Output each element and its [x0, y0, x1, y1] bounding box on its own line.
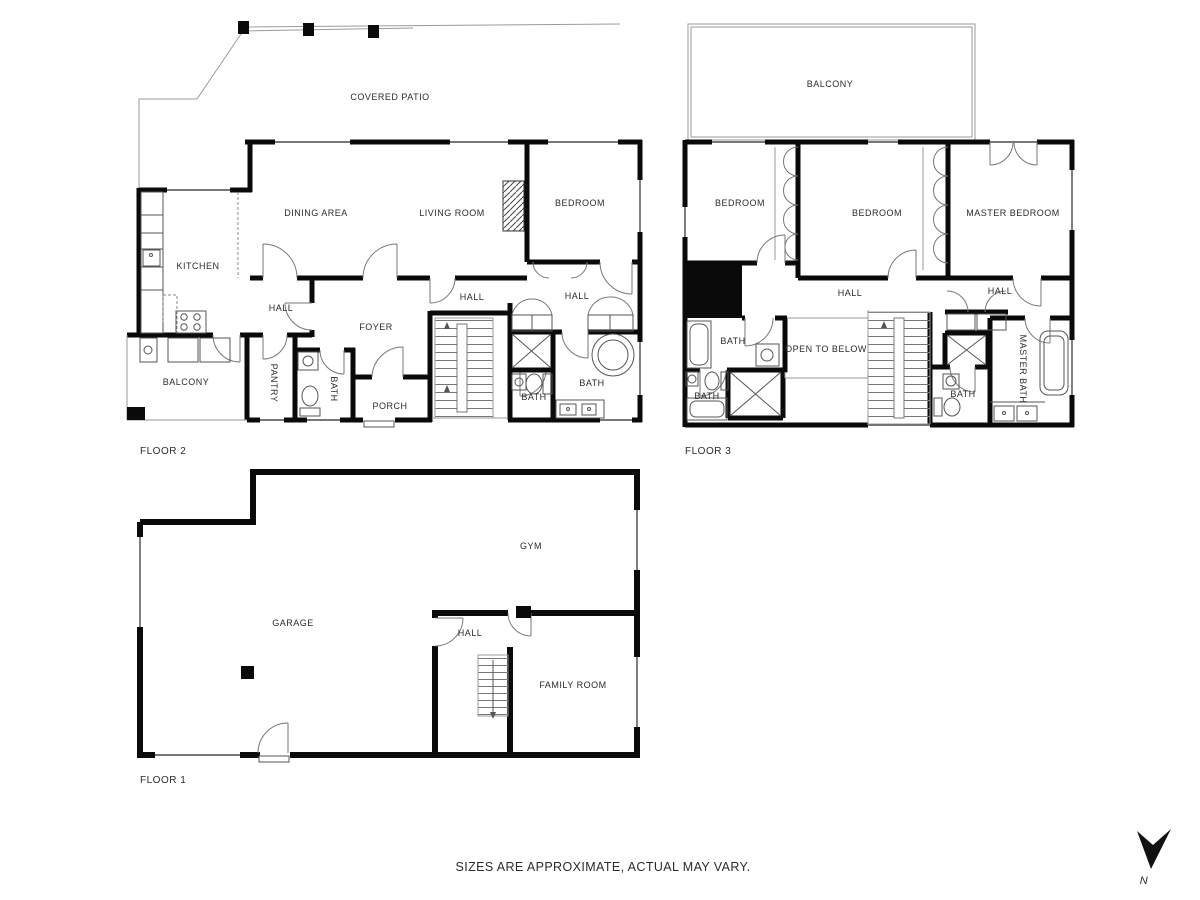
floor3-stairs: [868, 312, 930, 424]
chimney-mass: [685, 263, 742, 318]
floor1-plan: GYM GARAGE HALL FAMILY ROOM FLOOR 1: [140, 469, 637, 786]
room-label-bedroom-f2: BEDROOM: [555, 198, 605, 208]
room-label-balcony-f3: BALCONY: [807, 79, 854, 89]
room-label-hall-f1: HALL: [458, 628, 483, 638]
room-label-garage: GARAGE: [272, 618, 314, 628]
room-label-hall-center-f3: HALL: [838, 288, 863, 298]
room-label-master-bath: MASTER BATH: [1018, 335, 1028, 404]
room-label-hall-east-f2: HALL: [565, 291, 590, 301]
room-label-bath-small-f2: BATH: [521, 392, 546, 402]
floorplan-page: COVERED PATIO DINING AREA LIVING ROOM BE…: [0, 0, 1200, 900]
room-label-pantry: PANTRY: [269, 364, 279, 403]
room-label-gym: GYM: [520, 541, 542, 551]
room-label-bedroom-west-f3: BEDROOM: [715, 198, 765, 208]
room-label-living-room: LIVING ROOM: [419, 208, 485, 218]
floor1-stairs: [478, 655, 508, 719]
room-label-open-to-below: OPEN TO BELOW: [785, 344, 867, 354]
toilet: [526, 374, 542, 394]
room-label-kitchen: KITCHEN: [176, 261, 219, 271]
toilet: [944, 398, 960, 416]
floor2-bath-small-fixtures: [512, 374, 552, 394]
floor2-wardrobes: [512, 315, 633, 331]
floor1-windows: [140, 510, 637, 755]
floor2-plan: COVERED PATIO DINING AREA LIVING ROOM BE…: [127, 21, 642, 457]
toilet: [705, 372, 719, 390]
room-label-bath-center-f3: BATH: [950, 389, 975, 399]
patio-post: [303, 23, 314, 36]
floor2-bath-main-fixtures: [556, 334, 634, 418]
patio-post: [238, 21, 249, 34]
room-label-covered-patio: COVERED PATIO: [350, 92, 429, 102]
room-label-family-room: FAMILY ROOM: [539, 680, 606, 690]
floor2-label: FLOOR 2: [140, 446, 186, 457]
room-label-hall-east-f3: HALL: [988, 286, 1013, 296]
disclaimer-text: SIZES ARE APPROXIMATE, ACTUAL MAY VARY.: [455, 860, 750, 874]
room-label-bath-southwest-f3: BATH: [694, 391, 719, 401]
fireplace: [503, 181, 524, 231]
front-door-leaf: [364, 421, 394, 427]
room-label-balcony-f2: BALCONY: [163, 377, 210, 387]
room-label-dining-area: DINING AREA: [284, 208, 348, 218]
room-label-bedroom-center-f3: BEDROOM: [852, 208, 902, 218]
toilet: [302, 386, 318, 406]
room-label-bath-west-f2: BATH: [329, 376, 339, 401]
north-label: N: [1140, 875, 1148, 887]
room-label-bath-west-f3: BATH: [720, 336, 745, 346]
floorplan-canvas: COVERED PATIO DINING AREA LIVING ROOM BE…: [0, 0, 1200, 900]
room-label-hall-center-f2: HALL: [460, 292, 485, 302]
compass: N: [1137, 829, 1171, 887]
front-door-leaf-f1: [259, 756, 289, 762]
garage-post: [241, 666, 254, 679]
patio-post: [368, 25, 379, 38]
room-label-porch: PORCH: [372, 401, 407, 411]
floor1-walls: [140, 469, 637, 758]
balcony-corner-post: [127, 407, 145, 420]
floor2-stairs: [435, 318, 493, 418]
stove: [176, 311, 206, 333]
wall-post: [516, 606, 531, 618]
floor1-label: FLOOR 1: [140, 775, 186, 786]
room-label-bath-main-f2: BATH: [579, 378, 604, 388]
room-label-foyer: FOYER: [359, 322, 393, 332]
floor2-shaft: [510, 332, 553, 370]
floor3-plan: BALCONY BEDROOM BEDROOM MASTER BEDROOM H…: [685, 24, 1074, 457]
floor2-bath-west-fixtures: [298, 352, 320, 416]
floor2-patio-boundary: [139, 21, 620, 188]
floor2-balcony-fixtures: [140, 338, 230, 362]
room-label-hall-west-f2: HALL: [269, 303, 294, 313]
north-arrow-icon: [1137, 829, 1171, 869]
room-label-master-bedroom: MASTER BEDROOM: [966, 208, 1060, 218]
floor3-label: FLOOR 3: [685, 446, 731, 457]
